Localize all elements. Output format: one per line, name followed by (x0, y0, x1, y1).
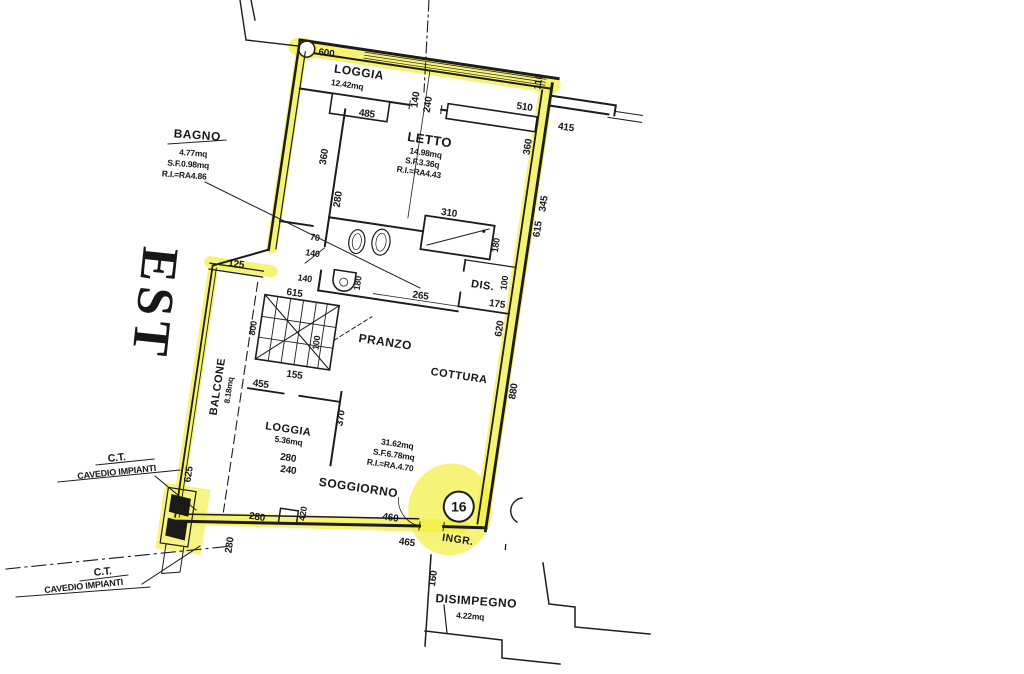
floor-plan-drawing: 600 LOGGIA 12.42mq 140 240 110 415 510 4… (0, 0, 1024, 674)
dim-top-140: 140 (409, 90, 422, 108)
room-label-soggiorno: SOGGIORNO (318, 475, 399, 501)
floor-plan-page: 600 LOGGIA 12.42mq 140 240 110 415 510 4… (0, 0, 1024, 674)
dim-bottom-465: 465 (398, 536, 416, 549)
dim-stairs-155: 155 (286, 369, 304, 382)
dim-right-510: 510 (516, 101, 534, 114)
room-label-dis: DIS. (470, 278, 495, 293)
dim-balcone-625: 625 (182, 465, 195, 483)
unit-number: 16 (451, 499, 467, 515)
dim-bottomleft-280: 280 (223, 536, 236, 554)
dim-bath-70: 70 (309, 232, 320, 243)
room-label-disimpegno: DISIMPEGNO (435, 591, 517, 611)
area-bagno: 4.77mq (179, 147, 208, 159)
dim-dis-265: 265 (412, 289, 430, 302)
ri-bagno: R.I.=RA4.86 (162, 168, 208, 181)
sink-icon (347, 225, 392, 259)
ct-upper-line2: CAVEDIO IMPIANTI (77, 463, 157, 481)
property-dashdot-line (6, 546, 232, 569)
orientation-label: EST (120, 244, 189, 363)
area-loggia-top: 12.42mq (330, 77, 364, 92)
dim-bottom-420: 420 (297, 506, 309, 522)
dim-niche-485: 485 (358, 108, 376, 121)
partial-neighbor-badge: I (504, 498, 522, 552)
dim-top-240: 240 (422, 95, 435, 113)
dim-bath-140a: 140 (305, 247, 321, 259)
dim-dis-175: 175 (488, 298, 506, 311)
dim-right-345: 345 (537, 194, 550, 212)
dim-loggia2-240: 240 (279, 464, 297, 477)
dim-letto-280: 280 (332, 190, 345, 208)
stray-mark: I (504, 542, 507, 552)
dim-right-615: 615 (532, 220, 545, 238)
dim-right-415: 415 (557, 121, 575, 134)
dim-stairs-100: 100 (310, 335, 322, 351)
disimpegno-area: 160 DISIMPEGNO 4.22mq (425, 555, 650, 664)
area-disimpegno: 4.22mq (456, 610, 485, 622)
dim-bath-140b: 140 (297, 272, 313, 284)
apartment-unit: 600 LOGGIA 12.42mq 140 240 110 415 510 4… (156, 28, 647, 634)
dim-wc-180: 180 (352, 275, 364, 291)
dim-disimp-160: 160 (427, 569, 440, 587)
dim-letto-left-360: 360 (318, 148, 331, 166)
dim-dis-100: 100 (498, 275, 510, 291)
room-label-cottura: COTTURA (430, 366, 488, 386)
room-label-pranzo: PRANZO (358, 331, 413, 353)
dim-shower-180: 180 (490, 237, 502, 253)
dim-right-880: 880 (507, 382, 520, 400)
dim-loggia2-370: 370 (334, 409, 347, 427)
dim-stairs-800: 800 (247, 320, 259, 336)
